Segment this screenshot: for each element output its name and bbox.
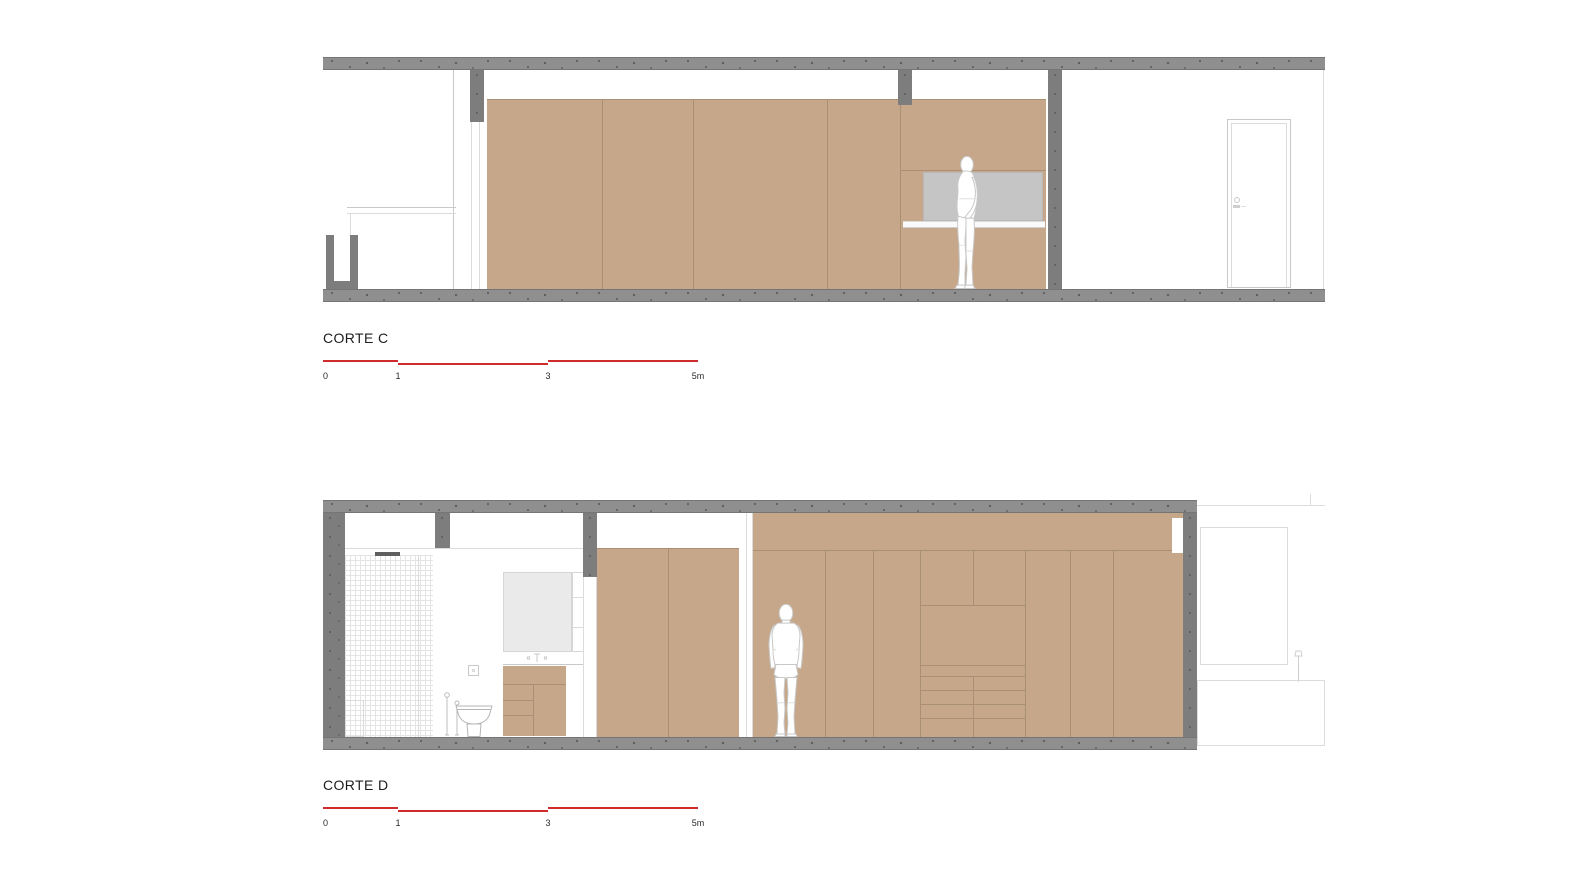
architectural-drawing-sheet: CORTE C 0135m <box>0 0 1582 890</box>
eave-line <box>1197 505 1325 506</box>
panel-seam <box>920 550 921 737</box>
scale-bar: 0135m <box>323 807 699 833</box>
glass-line <box>471 122 472 289</box>
cut-wall <box>1183 513 1197 737</box>
planter-section <box>326 235 358 289</box>
scale-tick-label: 3 <box>545 818 550 828</box>
bench-edge-line <box>347 213 456 214</box>
toilet-brush-icon <box>443 692 451 737</box>
roof-slab <box>323 500 1197 513</box>
shelf-line <box>573 627 583 628</box>
flush-plate <box>468 665 479 676</box>
scale-tick-label: 5m <box>692 371 705 381</box>
drawer-line <box>920 690 1025 691</box>
eave-tick <box>1310 494 1311 505</box>
door-handle-line <box>1241 206 1246 207</box>
vanity-drawer-line <box>503 715 533 716</box>
scale-segment <box>323 807 398 809</box>
cabinet-seam <box>920 665 1025 666</box>
vanity-drawer-line <box>503 700 533 701</box>
hanging-column <box>435 513 450 548</box>
tile-joint-line <box>418 555 419 737</box>
mirror-cabinet <box>503 572 572 652</box>
cut-wall <box>323 513 345 737</box>
wardrobe-recess <box>1172 518 1183 553</box>
drawer-line <box>920 718 1025 719</box>
roof-slab <box>323 57 1325 70</box>
hanging-column <box>583 513 597 577</box>
door-handle-icon <box>1233 205 1240 208</box>
toilet <box>455 705 493 737</box>
scale-tick-label: 1 <box>395 371 400 381</box>
cut-wall <box>1048 70 1062 289</box>
bench-top-line <box>347 207 456 208</box>
ceiling-shower-head <box>375 552 400 556</box>
shelf-line <box>573 597 583 598</box>
floor-slab <box>323 289 1325 302</box>
door-lock-icon <box>1234 197 1240 203</box>
wall-edge-line <box>746 513 747 737</box>
floor-slab <box>323 737 1197 750</box>
scale-tick-label: 0 <box>323 818 328 828</box>
hanging-column <box>898 70 912 105</box>
human-figure-front <box>762 604 810 737</box>
wardrobe-door-seam <box>668 548 669 737</box>
scale-tick-label: 5m <box>692 818 705 828</box>
exterior-opening <box>1200 527 1288 665</box>
door <box>1227 119 1291 288</box>
scale-segment <box>398 810 548 812</box>
drawer-seam <box>973 676 974 737</box>
scale-segment <box>398 363 548 365</box>
scale-segment <box>548 360 698 362</box>
counter-line <box>503 664 583 665</box>
panel-seam <box>1025 550 1026 737</box>
basin-faucet-icon <box>526 652 548 664</box>
panel-seam <box>825 550 826 737</box>
human-figure-side <box>946 156 992 289</box>
panel-seam <box>1113 550 1114 737</box>
section-c-title: CORTE C <box>323 330 389 346</box>
garden-faucet-icon <box>1291 650 1305 683</box>
hanging-column <box>470 70 484 122</box>
scale-tick-label: 0 <box>323 371 328 381</box>
window-frame-line <box>453 70 454 289</box>
shower-bench <box>345 700 364 737</box>
panel-seam <box>827 99 828 289</box>
vanity-cabinet <box>503 666 566 736</box>
panel-seam <box>753 550 1183 551</box>
panel-seam <box>1070 550 1071 737</box>
drawer-line <box>920 704 1025 705</box>
glass-line <box>479 122 480 289</box>
scale-segment <box>548 807 698 809</box>
section-d-title: CORTE D <box>323 777 389 793</box>
vanity-seam <box>503 684 566 685</box>
bench-leg <box>350 213 351 235</box>
scale-tick-label: 3 <box>545 371 550 381</box>
panel-seam <box>900 99 901 289</box>
vanity-seam <box>533 684 534 736</box>
partition-edge-line <box>583 577 584 737</box>
exterior-counter <box>1197 680 1325 746</box>
section-end-line <box>1323 70 1324 289</box>
scale-segment <box>323 360 398 362</box>
panel-seam <box>693 99 694 289</box>
scale-bar: 0135m <box>323 360 699 386</box>
wall-edge-line <box>752 513 753 737</box>
panel-seam <box>602 99 603 289</box>
panel-seam <box>873 550 874 737</box>
cabinet-seam <box>920 605 1025 606</box>
scale-tick-label: 1 <box>395 818 400 828</box>
cabinet-door-seam <box>973 550 974 605</box>
bathroom-ceiling-line <box>345 548 597 549</box>
